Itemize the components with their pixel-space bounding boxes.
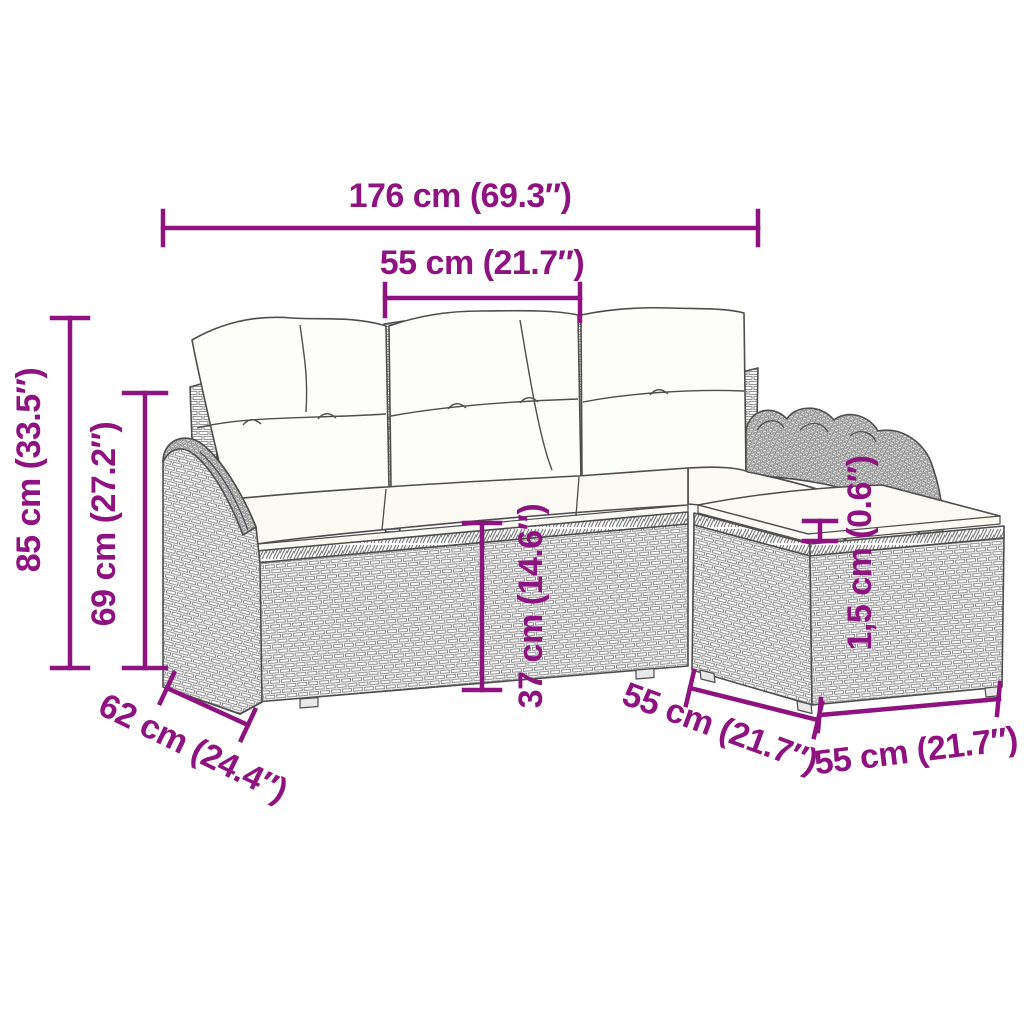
dim-line-total-width — [163, 211, 758, 245]
dimension-diagram: 176 cm (69.3″) 55 cm (21.7″) 85 cm (33.5… — [0, 0, 1024, 1024]
dim-line-back-height — [124, 393, 166, 668]
dim-label-seat-height: 37 cm (14.6″) — [514, 504, 548, 708]
dim-label-total-height: 85 cm (33.5″) — [12, 368, 46, 572]
dim-label-cushion-thickness: 1,5 cm (0.6″) — [843, 456, 877, 651]
dim-label-seat-width: 55 cm (21.7″) — [380, 246, 584, 280]
dim-line-total-height — [52, 318, 88, 668]
dim-label-back-height: 69 cm (27.2″) — [87, 422, 121, 626]
dim-label-total-width: 176 cm (69.3″) — [349, 179, 572, 213]
footstool-side-front — [810, 538, 1004, 705]
